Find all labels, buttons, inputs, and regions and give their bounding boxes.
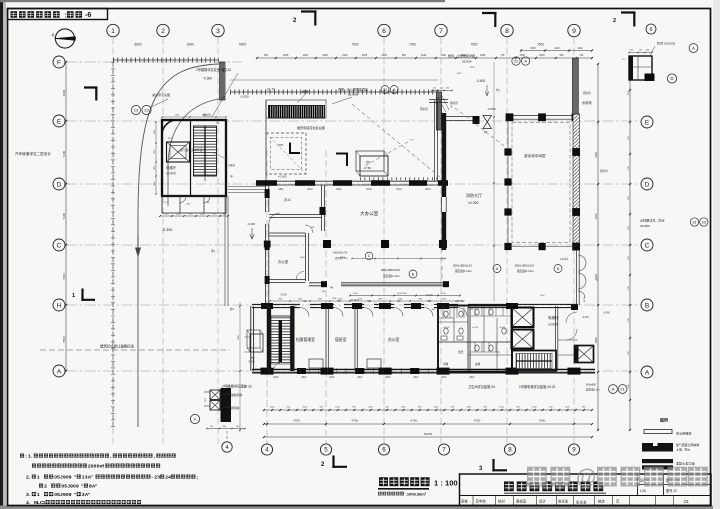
svg-text:WC2: WC2 [425,188,431,191]
svg-text:1 : 100: 1 : 100 [434,479,458,488]
svg-text:6700: 6700 [352,419,359,423]
svg-text:-0.015: -0.015 [443,327,450,329]
svg-text:03J606: 03J606 [640,224,650,228]
svg-text:1: 1 [111,28,115,35]
svg-text:+0.000: +0.000 [278,175,287,179]
svg-text:MC2: MC2 [273,376,279,379]
svg-text:WC2: WC2 [366,188,372,191]
svg-text:水景墙: 水景墙 [582,100,592,105]
svg-text:2025: 2025 [362,54,368,57]
svg-text:120: 120 [440,88,443,90]
svg-text:A: A [194,417,197,422]
svg-text:120: 120 [639,50,642,52]
svg-text:6: 6 [382,447,386,454]
svg-text:底层窗0.12m: 底层窗0.12m [455,268,472,273]
svg-text:A: A [57,368,62,375]
svg-text:2180: 2180 [378,298,382,300]
svg-text:M02: M02 [414,376,419,379]
svg-text:台2: 台2 [251,356,255,360]
svg-text:1号楼电梯详见建施-26.23: 1号楼电梯详见建施-26.23 [519,384,556,389]
svg-text:张生发: 张生发 [558,499,569,504]
svg-text:1500: 1500 [442,257,444,261]
svg-text:0.100: 0.100 [426,293,433,297]
svg-text:A: A [692,45,695,50]
svg-text:加热风井: 加热风井 [231,392,243,397]
svg-text:680: 680 [402,54,407,57]
svg-text:核定: 核定 [598,499,605,504]
svg-text:7000: 7000 [474,419,481,423]
svg-text:2180: 2180 [298,298,302,300]
svg-text:卫生间详见建施-34: 卫生间详见建施-34 [468,384,495,389]
svg-text:锥形导链花池见总图: 锥形导链花池见总图 [297,125,325,130]
svg-text:底层窗1.5m: 底层窗1.5m [586,388,600,392]
svg-text:混凝土(剪力墙): 混凝土(剪力墙) [676,461,695,466]
svg-text:1: 1 [37,475,40,481]
svg-text:档案管理室: 档案管理室 [296,337,315,342]
svg-text:7500: 7500 [539,419,546,423]
svg-text:±0.000: ±0.000 [455,299,463,303]
svg-text:电梯厅: 电梯厅 [166,165,177,170]
svg-text:-0.020: -0.020 [280,294,287,297]
svg-text:1200: 1200 [441,54,447,57]
svg-text:7200: 7200 [62,150,66,157]
svg-text:2号楼梯详见花池详图-32: 2号楼梯详见花池详图-32 [196,67,231,72]
svg-text:2440: 2440 [554,47,560,50]
svg-text:7500: 7500 [470,43,477,47]
svg-text:建筑红线退让道路红线: 建筑红线退让道路红线 [100,344,135,349]
svg-text:汽车坡道详见二层设计: 汽车坡道详见二层设计 [15,151,51,156]
svg-text:240: 240 [446,88,449,90]
svg-text:2440: 2440 [421,54,427,57]
svg-text:2100: 2100 [202,115,206,117]
svg-text:21: 21 [514,59,518,63]
svg-text:7200: 7200 [594,213,598,220]
svg-text:7: 7 [439,28,443,35]
svg-text:2号楼梯详见建施-32: 2号楼梯详见建施-32 [222,384,252,389]
svg-text:E: E [57,118,62,125]
svg-text:960: 960 [560,54,565,57]
svg-text:-0.750: -0.750 [363,166,371,170]
svg-text:2625: 2625 [283,54,289,57]
svg-text:梯1: 梯1 [230,307,235,311]
svg-text:6600: 6600 [62,89,66,96]
svg-text:-0.300: -0.300 [247,222,255,226]
svg-text:2: 2 [613,18,616,24]
svg-text:-6: -6 [85,10,91,19]
svg-text:上墙、防火: 上墙、防火 [676,447,691,452]
svg-text:顶部、办公楼雨篷顶盖: 顶部、办公楼雨篷顶盖 [338,87,368,92]
svg-text:7200: 7200 [594,151,598,158]
svg-text:1500: 1500 [442,274,444,278]
svg-text:1800: 1800 [154,166,156,170]
svg-text:B: B [645,302,649,309]
svg-text:透气窗详见车库设计: 透气窗详见车库设计 [180,148,205,152]
svg-text:4: 4 [225,445,228,451]
svg-text:花学信: 花学信 [476,499,487,504]
svg-text:240: 240 [433,88,436,90]
svg-text:3000: 3000 [322,54,328,57]
svg-text:A: A [645,369,650,376]
svg-text:6: 6 [650,27,653,33]
svg-text:H: H [57,302,62,309]
svg-text:6800: 6800 [134,43,141,47]
svg-text:排风井: 排风井 [231,405,240,410]
svg-text:13: 13 [134,107,139,112]
svg-text:7000: 7000 [409,43,416,47]
svg-text:7: 7 [442,447,446,454]
svg-text:2180: 2180 [418,298,422,300]
svg-text:加气混凝土砌块墙: 加气混凝土砌块墙 [676,442,699,447]
svg-text:2625: 2625 [480,54,486,57]
svg-text:M.C1: M.C1 [584,296,586,302]
svg-text:雨棚: 雨棚 [302,89,308,94]
svg-text:4: 4 [265,447,269,454]
svg-text:21: 21 [383,88,387,92]
svg-text:21: 21 [620,386,625,391]
svg-text:楼顶、台全楼踏详图: 楼顶、台全楼踏详图 [448,53,475,58]
svg-text:±0.000: ±0.000 [468,201,478,205]
svg-text:1500: 1500 [278,298,282,300]
svg-text:390: 390 [451,105,453,108]
svg-text:D: D [57,181,62,188]
svg-text:9: 9 [69,475,72,481]
svg-text:-0.400: -0.400 [476,79,485,83]
svg-text:22: 22 [144,107,149,112]
svg-text:台4: 台4 [366,160,371,164]
svg-text:600x800: 600x800 [586,383,597,387]
svg-text:张生发: 张生发 [576,500,587,505]
svg-text:A: A [612,386,615,391]
svg-text:-0.050: -0.050 [487,107,496,111]
svg-text:办公室: 办公室 [278,259,289,264]
svg-text:-0.300: -0.300 [203,77,212,81]
svg-text:周祥富: 周祥富 [516,499,527,504]
svg-text:190: 190 [236,426,239,428]
svg-text:MC2: MC2 [396,188,402,191]
svg-text:D: D [670,76,673,81]
svg-text:9: 9 [572,447,576,454]
svg-text:9: 9 [76,484,79,490]
svg-text:9000: 9000 [239,43,246,47]
svg-text:5: 5 [324,447,328,454]
svg-text:8: 8 [505,28,509,35]
svg-text:900: 900 [646,50,649,52]
svg-text:1500: 1500 [318,298,322,300]
svg-text:90: 90 [436,99,438,101]
svg-text:WC2: WC2 [307,188,313,191]
svg-text:MC2: MC2 [441,376,447,379]
svg-text:1500: 1500 [442,266,444,270]
svg-text:7800: 7800 [62,336,66,343]
svg-text:办-6: 办-6 [284,197,291,202]
svg-text:6700: 6700 [411,419,418,423]
svg-text:1360: 1360 [222,426,226,428]
svg-text:9: 9 [572,28,576,35]
svg-text:4200: 4200 [300,257,306,259]
svg-text:2%: 2% [622,59,625,61]
svg-text:7500: 7500 [351,43,358,47]
svg-text:雨水管: 雨水管 [600,169,608,173]
svg-text:1: 1 [37,492,40,498]
svg-text:23: 23 [702,220,706,224]
svg-text:3: 3 [216,28,220,35]
svg-text:M02: M02 [302,376,307,379]
svg-text:-0.750: -0.750 [248,361,255,364]
svg-text::: : [65,12,67,19]
svg-text:3000 1500: 3000 1500 [397,293,407,295]
svg-text:1800: 1800 [154,150,156,154]
svg-text:2400: 2400 [175,115,179,117]
svg-text:7500: 7500 [537,43,544,47]
svg-text:男厕: 男厕 [443,362,449,366]
svg-text:745: 745 [500,54,505,57]
svg-text:1: 1 [43,500,46,506]
svg-text:240: 240 [630,50,633,52]
svg-text:E: E [645,119,650,126]
svg-text:-0.015: -0.015 [499,327,506,329]
svg-text:9: 9 [69,492,72,498]
svg-text:M02: M02 [358,376,363,379]
svg-text:-0.300: -0.300 [162,228,172,232]
svg-text:MC2: MC2 [336,188,342,191]
svg-text:7200: 7200 [62,273,66,280]
svg-text:设计: 设计 [539,499,546,504]
svg-text:1500: 1500 [342,54,348,57]
svg-text:MC2: MC2 [385,376,391,379]
svg-text:400x500x730: 400x500x730 [333,252,348,255]
svg-text:6: 6 [382,28,386,35]
svg-text:63J306: 63J306 [462,60,472,64]
svg-text:L26: L26 [640,489,646,493]
svg-text:-0.015: -0.015 [472,327,479,329]
svg-text:2: 2 [161,28,165,35]
svg-text:底层窗0.12m: 底层窗0.12m [383,273,400,278]
svg-text:1,M平1: 1,M平1 [560,257,569,261]
svg-text:大样图详见、防水: 大样图详见、防水 [640,218,666,223]
svg-text:管井 03J/206: 管井 03J/206 [657,41,675,46]
svg-text:-0.250: -0.250 [240,95,249,99]
svg-text:图号 22: 图号 22 [666,488,677,493]
svg-text:8: 8 [508,447,512,454]
svg-text:水暖井: 水暖井 [228,163,236,167]
svg-text:2865: 2865 [278,144,284,147]
svg-text:6400: 6400 [187,43,194,47]
svg-text:大办公室: 大办公室 [360,210,379,217]
svg-text:1200: 1200 [303,54,309,57]
svg-text:1: 1 [72,293,75,299]
svg-text:游泳池中间层: 游泳池中间层 [524,153,546,158]
svg-text:M02: M02 [279,188,284,191]
svg-text:7800: 7800 [238,334,240,340]
svg-text:3025: 3025 [382,54,388,57]
svg-text:±0.000: ±0.000 [350,298,359,302]
svg-text:31: 31 [692,220,696,224]
svg-text:MC2: MC2 [329,376,335,379]
svg-text:745: 745 [579,54,584,57]
svg-text:台1: 台1 [496,88,501,92]
svg-text:C: C [57,242,62,249]
svg-text:63J/306: 63J/306 [348,93,358,97]
svg-text:F: F [57,59,61,66]
svg-text:-0.450: -0.450 [603,312,610,315]
svg-text:7800: 7800 [594,337,598,344]
svg-text:1800: 1800 [154,130,156,134]
svg-text:D: D [645,181,650,188]
svg-text:960: 960 [264,54,269,57]
svg-text:雨1: 雨1 [211,249,216,253]
svg-text:7200: 7200 [62,212,66,219]
svg-text:雨水管: 雨水管 [450,101,458,105]
svg-text:1800: 1800 [154,182,156,186]
svg-text:盥洗: 盥洗 [458,350,464,354]
svg-text:校对: 校对 [498,499,505,504]
svg-text:50250: 50250 [424,432,433,436]
svg-text::1008.36m²: :1008.36m² [406,491,427,496]
svg-text:1500: 1500 [442,298,446,300]
svg-text:雨水管: 雨水管 [583,91,591,95]
svg-text:减速带见总图: 减速带见总图 [152,92,170,97]
svg-text:4700: 4700 [293,419,300,423]
svg-text:女厕: 女厕 [475,362,481,366]
svg-text:±0.000: ±0.000 [548,323,558,327]
svg-text:140: 140 [210,426,213,428]
svg-text:-21.72: -21.72 [266,88,275,92]
svg-text:3025: 3025 [530,47,536,50]
svg-text:@: @ [576,466,596,489]
svg-text:900x1850x210: 900x1850x210 [515,264,534,268]
svg-text:底黑地1.6m: 底黑地1.6m [335,256,348,260]
svg-text:2: 2 [44,484,47,490]
svg-text:900x1850x210: 900x1850x210 [381,268,400,272]
svg-text:审核: 审核 [461,499,468,504]
svg-text:±0.000: ±0.000 [166,172,176,176]
svg-text:2025: 2025 [539,54,545,57]
svg-text:空心砖墙体: 空心砖墙体 [676,431,691,436]
svg-text:消防大厅: 消防大厅 [466,192,482,198]
svg-text:3: 3 [157,475,160,481]
svg-text:900x1850x210: 900x1850x210 [453,264,472,268]
svg-text:值班室: 值班室 [335,337,347,342]
svg-text:23: 23 [684,499,689,504]
svg-text:M02: M02 [470,376,475,379]
svg-text:底层窗0.12m: 底层窗0.12m [517,268,534,273]
svg-text:图例: 图例 [660,417,668,423]
svg-text:办公室: 办公室 [388,337,400,342]
svg-text:M1C: M1C [205,397,207,402]
svg-text:-0.015: -0.015 [582,316,589,319]
svg-text:C: C [645,242,650,249]
svg-text:4: 4 [168,475,171,481]
svg-text:雨水管: 雨水管 [420,107,428,111]
svg-text:1200: 1200 [577,47,583,50]
